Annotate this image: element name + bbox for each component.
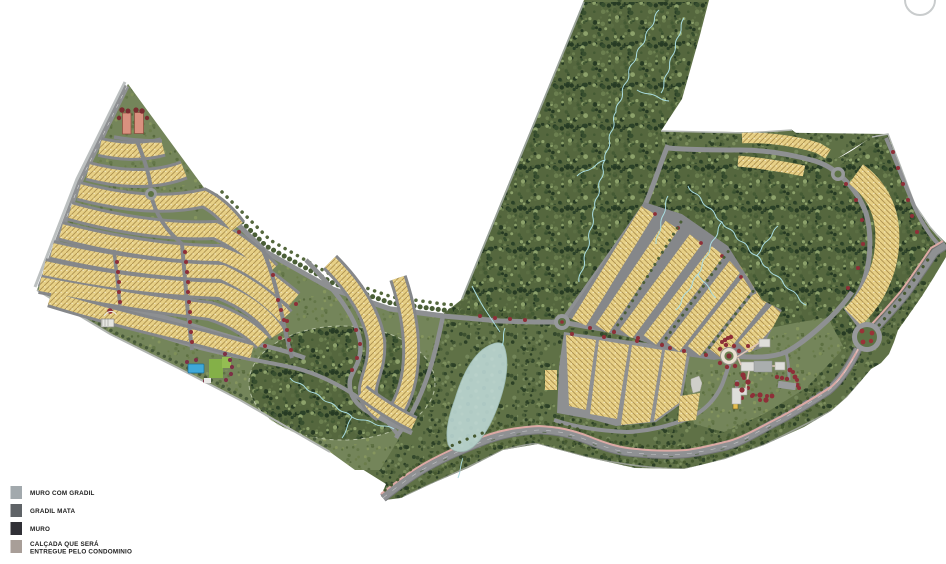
svg-text:GRADIL MATA: GRADIL MATA: [30, 508, 75, 515]
svg-text:ENTREGUE PELO CONDOMINIO: ENTREGUE PELO CONDOMINIO: [30, 549, 132, 556]
svg-text:MURO COM GRADIL: MURO COM GRADIL: [30, 490, 95, 497]
svg-text:MURO: MURO: [30, 526, 50, 533]
svg-text:CALÇADA QUE SERÁ: CALÇADA QUE SERÁ: [30, 539, 99, 548]
